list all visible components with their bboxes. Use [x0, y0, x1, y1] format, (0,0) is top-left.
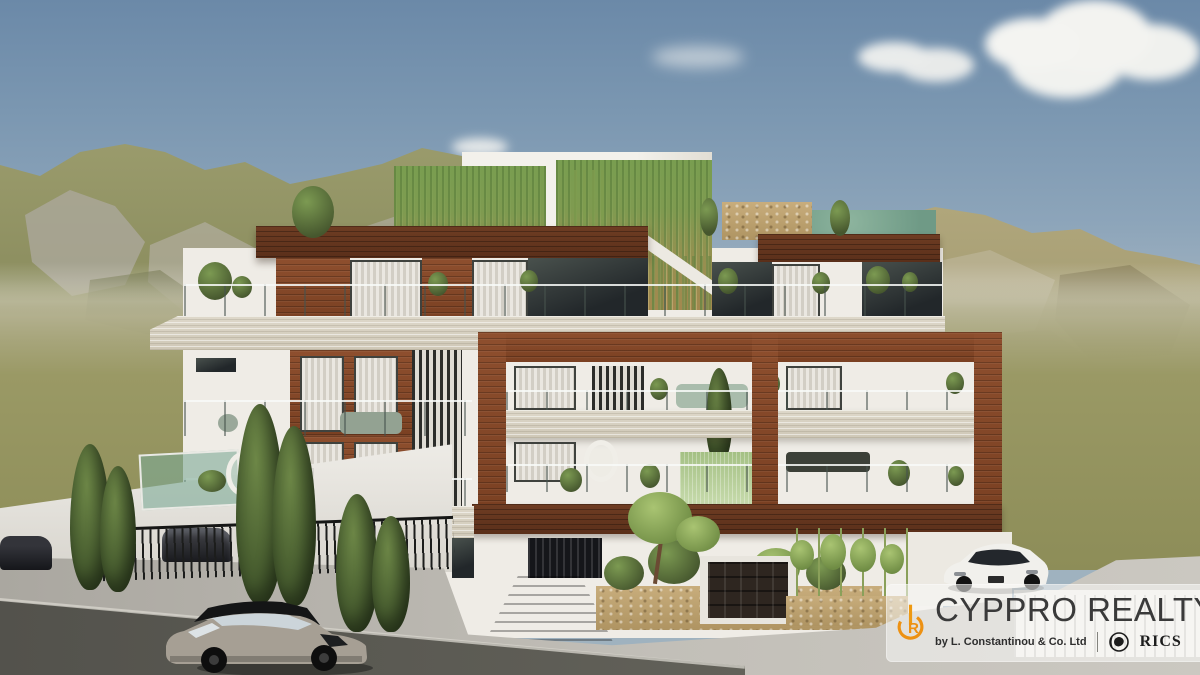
divider	[1097, 632, 1098, 652]
sculpted-tree-canopy	[676, 516, 720, 552]
timber-frame-column	[752, 332, 778, 518]
entrance-door	[452, 538, 474, 578]
watermark-subrow: by L. Constantinou & Co. Ltd RICS	[935, 631, 1200, 653]
brand-name: CYPPRO REALTY	[935, 593, 1200, 628]
garden-shrub	[604, 556, 644, 590]
entrance-gate	[528, 538, 602, 578]
timber-frame-column	[478, 332, 506, 518]
balcony-balustrade	[506, 464, 974, 492]
parked-car-dark	[0, 536, 52, 570]
cyppro-monogram-icon: R	[896, 593, 925, 653]
cloud	[652, 46, 744, 68]
watermark: R CYPPRO REALTY by L. Constantinou & Co.…	[886, 584, 1200, 662]
rics-lion-icon	[1108, 631, 1130, 653]
bamboo-foliage	[850, 538, 876, 572]
balcony-balustrade	[184, 400, 472, 438]
cloud	[985, 18, 1080, 70]
rics-label: RICS	[1140, 633, 1182, 651]
bamboo-foliage	[880, 544, 904, 574]
render-canvas: R CYPPRO REALTY by L. Constantinou & Co.…	[0, 0, 1200, 675]
balcony-slab-middle	[506, 410, 974, 438]
cloud	[858, 42, 930, 72]
bamboo-foliage	[820, 534, 846, 570]
bamboo-foliage	[790, 540, 814, 570]
roof-band-right-wing	[758, 234, 940, 262]
watermark-text-block: CYPPRO REALTY by L. Constantinou & Co. L…	[935, 593, 1200, 653]
timber-frame-column	[974, 332, 1002, 518]
brand-byline: by L. Constantinou & Co. Ltd	[935, 636, 1087, 648]
terrace-plant	[198, 470, 226, 492]
garage-door	[708, 562, 788, 618]
timber-frame-top	[478, 332, 1002, 362]
roof-tree	[700, 198, 718, 236]
ground-floor-fascia	[470, 504, 1002, 534]
grey-suv	[160, 594, 375, 675]
monogram-letter: R	[908, 620, 919, 637]
roof-tree	[830, 200, 850, 236]
roof-tree	[292, 186, 334, 238]
window	[196, 358, 236, 372]
